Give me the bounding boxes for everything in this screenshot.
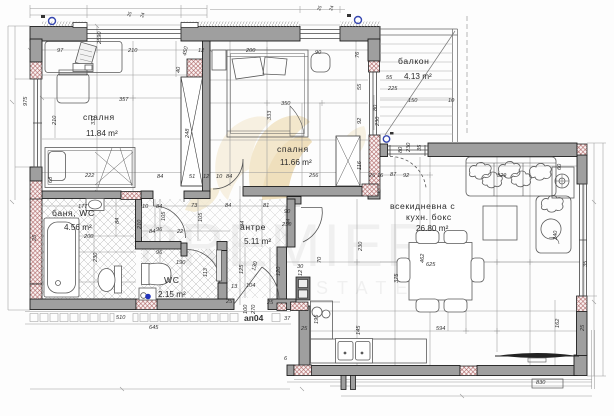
svg-text:26.80 m²: 26.80 m² (416, 224, 449, 233)
svg-text:104: 104 (246, 283, 255, 289)
svg-text:25: 25 (300, 326, 308, 332)
svg-text:81: 81 (263, 203, 269, 209)
svg-text:329: 329 (497, 173, 506, 179)
svg-text:80: 80 (373, 104, 379, 111)
svg-text:51: 51 (189, 174, 195, 180)
svg-text:100: 100 (243, 304, 249, 314)
svg-text:80: 80 (398, 146, 404, 153)
svg-text:63: 63 (48, 176, 54, 183)
svg-text:76: 76 (355, 51, 361, 58)
svg-text:кухн. бокс: кухн. бокс (406, 212, 452, 222)
svg-text:84: 84 (156, 204, 162, 210)
svg-text:10: 10 (448, 98, 455, 104)
svg-text:210: 210 (137, 219, 143, 230)
svg-text:22: 22 (176, 229, 184, 235)
svg-text:11.84 m²: 11.84 m² (86, 129, 118, 138)
svg-text:12: 12 (198, 48, 205, 54)
svg-text:230: 230 (375, 116, 381, 127)
svg-text:балкон: балкон (398, 56, 430, 66)
svg-text:30: 30 (297, 264, 304, 270)
svg-text:116: 116 (357, 160, 363, 170)
svg-text:645: 645 (149, 325, 159, 331)
svg-text:84: 84 (225, 203, 231, 209)
svg-text:177: 177 (78, 204, 88, 210)
svg-text:270: 270 (251, 304, 257, 315)
svg-text:12: 12 (203, 174, 210, 180)
svg-text:195: 195 (314, 314, 320, 324)
svg-text:200: 200 (83, 234, 94, 240)
svg-text:55: 55 (357, 83, 363, 90)
svg-text:105: 105 (161, 211, 167, 221)
svg-text:WC: WC (164, 275, 180, 285)
svg-text:248: 248 (185, 128, 191, 139)
svg-text:84: 84 (115, 218, 121, 224)
svg-text:200: 200 (245, 48, 256, 54)
svg-text:4.13 m²: 4.13 m² (404, 72, 432, 81)
svg-text:150: 150 (408, 98, 418, 104)
svg-text:26: 26 (368, 173, 376, 179)
svg-text:2.15 m²: 2.15 m² (158, 290, 186, 299)
svg-text:125: 125 (239, 264, 245, 274)
svg-text:90: 90 (315, 50, 322, 56)
svg-text:830: 830 (536, 380, 546, 386)
svg-text:11.66 m²: 11.66 m² (280, 158, 312, 167)
svg-text:94: 94 (286, 219, 292, 225)
svg-text:84: 84 (226, 174, 232, 180)
svg-text:594: 594 (436, 326, 445, 332)
svg-text:105: 105 (198, 212, 204, 222)
svg-text:113: 113 (203, 267, 209, 277)
svg-text:210: 210 (52, 115, 58, 126)
svg-text:92: 92 (357, 117, 363, 124)
svg-text:350: 350 (281, 101, 291, 107)
svg-text:230: 230 (406, 142, 412, 153)
svg-text:162: 162 (555, 318, 561, 328)
svg-text:55: 55 (386, 75, 393, 81)
svg-text:40: 40 (176, 66, 182, 73)
svg-text:210: 210 (127, 48, 138, 54)
svg-text:510: 510 (116, 315, 126, 321)
svg-text:230: 230 (93, 252, 99, 263)
svg-text:5.11 m²: 5.11 m² (244, 237, 271, 246)
svg-text:90: 90 (284, 209, 291, 215)
svg-text:87: 87 (390, 172, 397, 178)
svg-text:96: 96 (156, 227, 163, 233)
svg-text:37: 37 (284, 316, 291, 322)
svg-text:25: 25 (32, 234, 38, 242)
svg-text:240: 240 (553, 230, 559, 241)
svg-text:13: 13 (231, 284, 238, 290)
svg-text:70: 70 (317, 256, 323, 263)
svg-text:256: 256 (308, 173, 319, 179)
svg-text:96: 96 (156, 250, 163, 256)
svg-text:16: 16 (377, 173, 384, 179)
svg-text:всекидневна с: всекидневна с (390, 201, 455, 211)
svg-text:375: 375 (394, 273, 400, 283)
svg-text:94: 94 (240, 221, 246, 227)
svg-text:222: 222 (84, 173, 95, 179)
svg-text:35: 35 (417, 144, 423, 151)
svg-text:333: 333 (91, 115, 97, 125)
svg-text:230: 230 (358, 241, 364, 252)
svg-text:357: 357 (119, 97, 129, 103)
svg-text:975: 975 (23, 96, 29, 106)
svg-text:73: 73 (191, 203, 198, 209)
svg-text:2590: 2590 (97, 31, 103, 45)
svg-text:12: 12 (298, 269, 304, 276)
svg-text:10: 10 (142, 204, 149, 210)
svg-text:462: 462 (420, 253, 426, 263)
svg-text:190: 190 (176, 260, 186, 266)
svg-text:84: 84 (149, 229, 155, 235)
svg-text:спалня: спалня (83, 112, 115, 122)
svg-text:60: 60 (557, 163, 563, 170)
svg-text:25: 25 (225, 299, 233, 305)
svg-text:333: 333 (267, 110, 273, 120)
svg-text:баня, WC: баня, WC (52, 208, 95, 218)
svg-text:35: 35 (583, 260, 589, 267)
svg-text:4.56 m²: 4.56 m² (64, 223, 92, 232)
svg-text:145: 145 (356, 325, 362, 335)
svg-text:25: 25 (266, 300, 274, 306)
svg-text:10: 10 (216, 174, 223, 180)
svg-text:84: 84 (157, 174, 163, 180)
svg-text:25: 25 (580, 324, 586, 332)
svg-text:625: 625 (426, 262, 436, 268)
svg-text:225: 225 (387, 86, 398, 92)
svg-text:97: 97 (57, 48, 64, 54)
svg-text:спалня: спалня (277, 144, 309, 154)
svg-text:120: 120 (276, 266, 282, 276)
svg-text:92: 92 (403, 173, 410, 179)
